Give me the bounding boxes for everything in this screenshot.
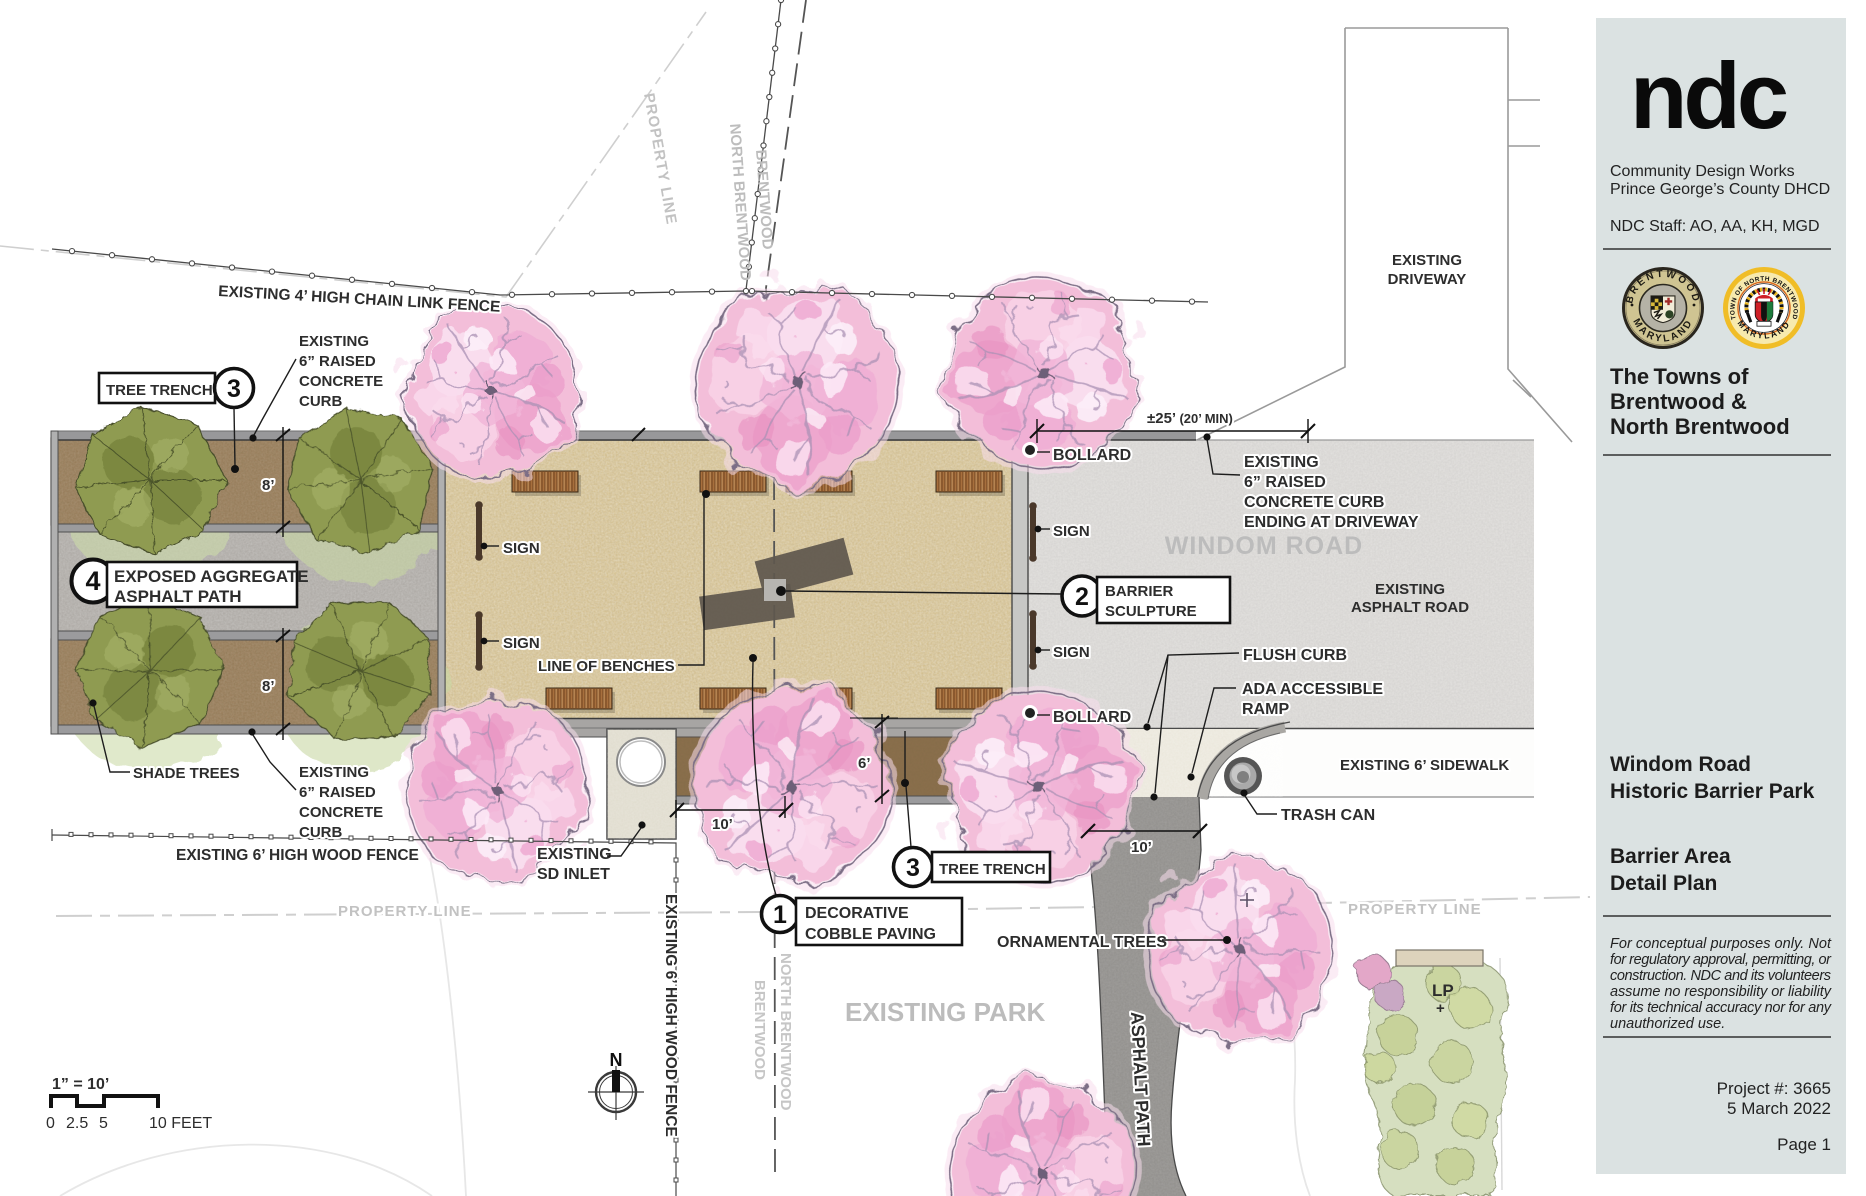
svg-text:3: 3 xyxy=(906,854,920,882)
svg-text:Community Design Works: Community Design Works xyxy=(1610,163,1795,180)
svg-text:BOLLARD: BOLLARD xyxy=(1053,447,1131,464)
svg-text:TREE TRENCH: TREE TRENCH xyxy=(939,861,1046,878)
svg-text:Windom Road: Windom Road xyxy=(1610,753,1751,776)
svg-text:NORTH BRENTWOOD: NORTH BRENTWOOD xyxy=(777,953,794,1111)
svg-text:EXISTING: EXISTING xyxy=(299,333,369,350)
svg-text:PROPERTY LINE: PROPERTY LINE xyxy=(338,903,472,920)
svg-text:EXISTING: EXISTING xyxy=(299,764,369,781)
svg-text:EXISTING: EXISTING xyxy=(1375,581,1445,598)
svg-text:Detail Plan: Detail Plan xyxy=(1610,872,1717,895)
svg-text:6” RAISED: 6” RAISED xyxy=(1244,474,1326,491)
svg-text:EXISTING 6’ SIDEWALK: EXISTING 6’ SIDEWALK xyxy=(1340,757,1509,774)
svg-text:LP: LP xyxy=(1432,981,1454,1000)
svg-text:SIGN: SIGN xyxy=(503,540,540,557)
svg-text:Project #: 3665: Project #: 3665 xyxy=(1717,1079,1831,1098)
svg-text:4: 4 xyxy=(85,566,100,596)
svg-text:ORNAMENTAL TREES: ORNAMENTAL TREES xyxy=(997,934,1167,951)
svg-text:EXISTING: EXISTING xyxy=(1244,454,1319,471)
svg-text:NDC Staff: AO, AA, KH, MGD: NDC Staff: AO, AA, KH, MGD xyxy=(1610,218,1820,235)
svg-text:DECORATIVE: DECORATIVE xyxy=(805,905,909,922)
svg-text:SIGN: SIGN xyxy=(503,635,540,652)
svg-text:Historic Barrier Park: Historic Barrier Park xyxy=(1610,780,1815,803)
svg-text:DRIVEWAY: DRIVEWAY xyxy=(1388,271,1467,288)
svg-text:6’: 6’ xyxy=(858,755,871,772)
svg-text:ENDING AT DRIVEWAY: ENDING AT DRIVEWAY xyxy=(1244,514,1419,531)
svg-text:SHADE TREES: SHADE TREES xyxy=(133,765,240,782)
svg-text:CURB: CURB xyxy=(299,824,342,841)
svg-text:assume no responsibility or li: assume no responsibility or liability xyxy=(1610,984,1832,1000)
svg-text:EXISTING 6’ HIGH WOOD FENCE: EXISTING 6’ HIGH WOOD FENCE xyxy=(662,894,679,1137)
svg-text:0: 0 xyxy=(46,1115,55,1132)
svg-text:8’: 8’ xyxy=(262,477,275,494)
svg-text:The Towns of: The Towns of xyxy=(1610,364,1749,389)
svg-text:for its technical accuracy nor: for its technical accuracy nor for any xyxy=(1610,1000,1832,1016)
svg-text:FLUSH CURB: FLUSH CURB xyxy=(1243,647,1347,664)
svg-text:±25’ (20’ MIN): ±25’ (20’ MIN) xyxy=(1147,410,1233,427)
svg-text:SIGN: SIGN xyxy=(1053,644,1090,661)
svg-text:EXISTING: EXISTING xyxy=(1392,252,1462,269)
svg-text:Barrier Area: Barrier Area xyxy=(1610,845,1731,868)
svg-text:2.5: 2.5 xyxy=(66,1115,88,1132)
svg-text:CONCRETE CURB: CONCRETE CURB xyxy=(1244,494,1384,511)
svg-text:CONCRETE: CONCRETE xyxy=(299,373,383,390)
svg-text:for regulatory approval, permi: for regulatory approval, permitting, or xyxy=(1610,952,1832,968)
svg-text:construction. NDC and its volu: construction. NDC and its volunteers xyxy=(1610,968,1831,984)
svg-text:WINDOM ROAD: WINDOM ROAD xyxy=(1165,532,1363,560)
svg-text:10’: 10’ xyxy=(712,816,733,833)
svg-text:Page 1: Page 1 xyxy=(1777,1135,1831,1154)
svg-text:COBBLE PAVING: COBBLE PAVING xyxy=(805,926,936,943)
svg-text:3: 3 xyxy=(227,375,241,403)
svg-text:6” RAISED: 6” RAISED xyxy=(299,353,376,370)
svg-text:CONCRETE: CONCRETE xyxy=(299,804,383,821)
svg-text:5 March 2022: 5 March 2022 xyxy=(1727,1099,1831,1118)
svg-text:ASPHALT ROAD: ASPHALT ROAD xyxy=(1351,599,1469,616)
svg-text:TREE TRENCH: TREE TRENCH xyxy=(106,382,213,399)
svg-text:BARRIER: BARRIER xyxy=(1105,583,1174,600)
svg-text:PROPERTY LINE: PROPERTY LINE xyxy=(1348,901,1482,918)
svg-text:CURB: CURB xyxy=(299,393,342,410)
svg-text:unauthorized use.: unauthorized use. xyxy=(1610,1016,1725,1032)
svg-text:RAMP: RAMP xyxy=(1242,701,1289,718)
svg-text:EXISTING 6’ HIGH WOOD FENCE: EXISTING 6’ HIGH WOOD FENCE xyxy=(176,847,419,864)
svg-text:BOLLARD: BOLLARD xyxy=(1053,709,1131,726)
svg-text:+: + xyxy=(1436,1000,1445,1017)
svg-text:Prince George’s County DHCD: Prince George’s County DHCD xyxy=(1610,181,1830,198)
svg-text:North Brentwood: North Brentwood xyxy=(1610,414,1790,439)
svg-text:2: 2 xyxy=(1075,583,1089,611)
svg-text:EXISTING PARK: EXISTING PARK xyxy=(845,997,1046,1027)
svg-text:1” = 10’: 1” = 10’ xyxy=(52,1076,109,1093)
svg-text:ndc: ndc xyxy=(1630,43,1787,148)
svg-text:Brentwood &: Brentwood & xyxy=(1610,389,1747,414)
svg-text:1: 1 xyxy=(773,901,787,929)
svg-text:ASPHALT PATH: ASPHALT PATH xyxy=(114,587,242,606)
svg-text:6” RAISED: 6” RAISED xyxy=(299,784,376,801)
svg-text:TRASH CAN: TRASH CAN xyxy=(1281,807,1375,824)
svg-text:10’: 10’ xyxy=(1131,839,1152,856)
svg-text:SCULPTURE: SCULPTURE xyxy=(1105,603,1197,620)
svg-text:BRENTWOOD: BRENTWOOD xyxy=(751,980,768,1080)
svg-text:LINE OF BENCHES: LINE OF BENCHES xyxy=(538,658,675,675)
svg-text:EXPOSED AGGREGATE: EXPOSED AGGREGATE xyxy=(114,567,309,586)
svg-text:10 FEET: 10 FEET xyxy=(149,1115,212,1132)
svg-text:For conceptual purposes only.: For conceptual purposes only. Not xyxy=(1610,936,1832,952)
svg-text:5: 5 xyxy=(99,1115,108,1132)
svg-text:ADA ACCESSIBLE: ADA ACCESSIBLE xyxy=(1242,681,1383,698)
svg-text:EXISTING: EXISTING xyxy=(537,846,612,863)
svg-text:SD INLET: SD INLET xyxy=(537,866,610,883)
svg-text:SIGN: SIGN xyxy=(1053,523,1090,540)
svg-text:8’: 8’ xyxy=(262,678,275,695)
